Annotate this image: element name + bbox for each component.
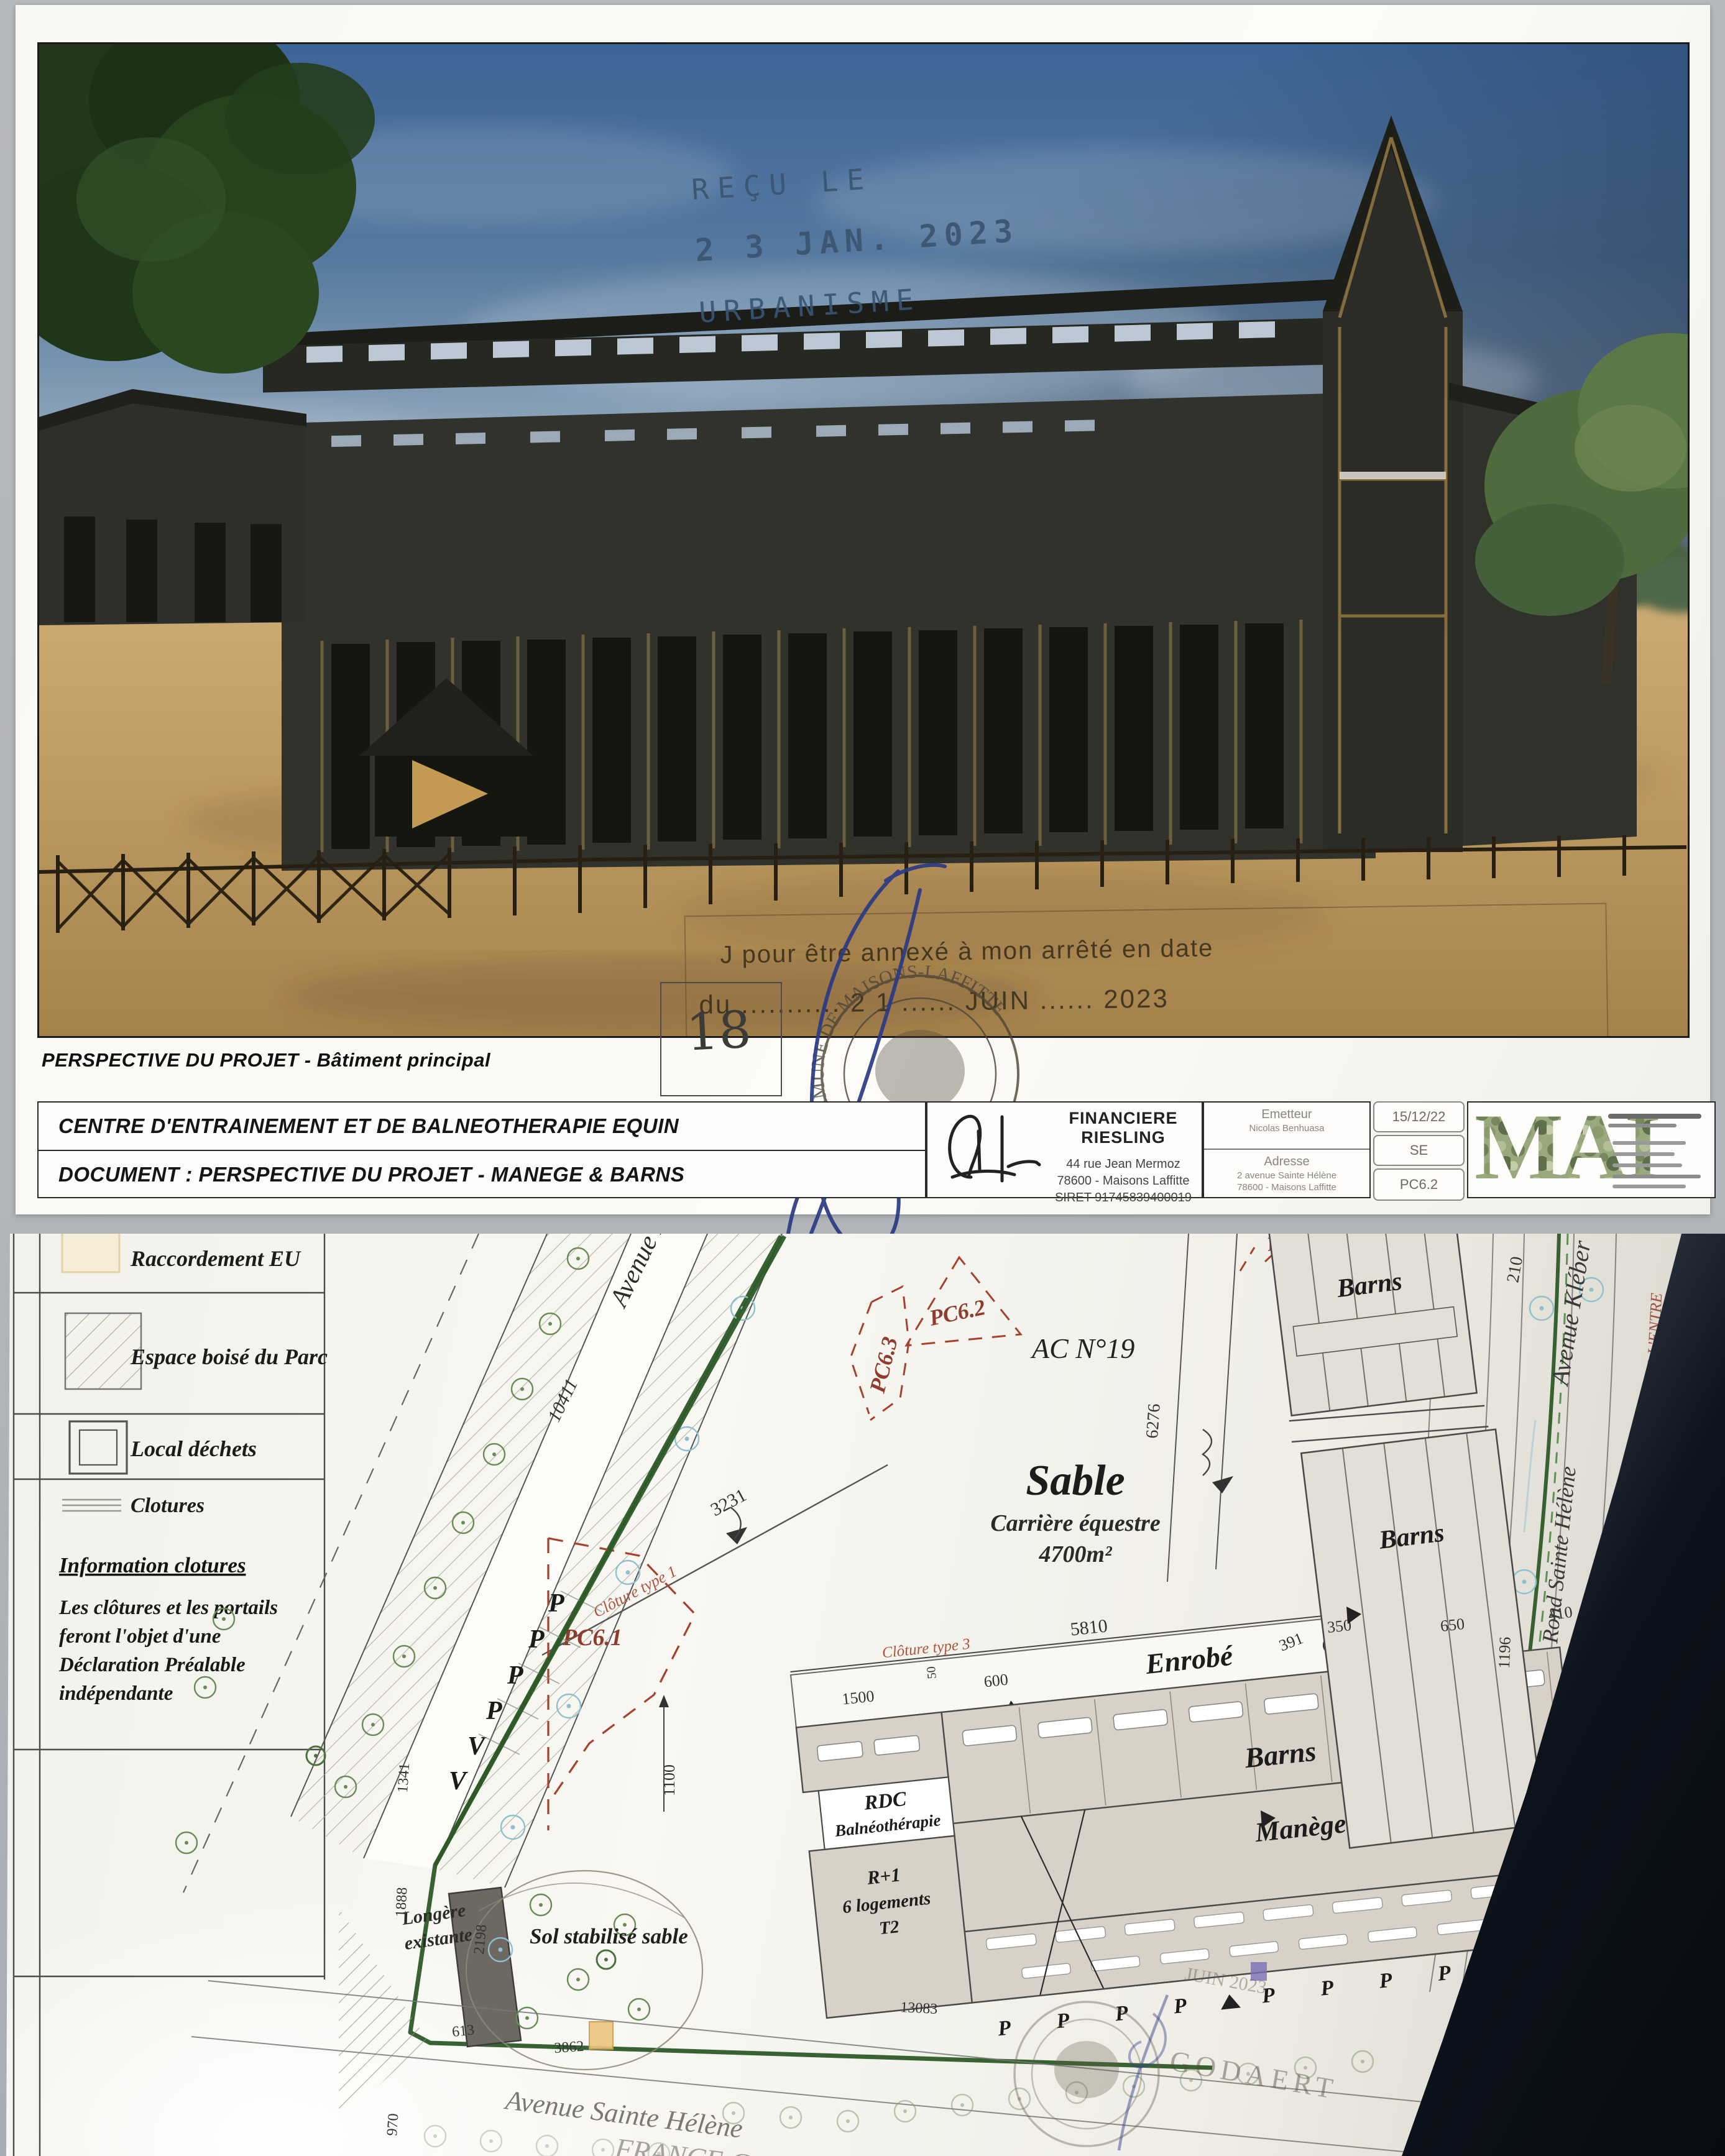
svg-text:P: P bbox=[996, 2016, 1012, 2040]
legend-symbol-boise bbox=[65, 1313, 141, 1389]
dim-5810: 5810 bbox=[1069, 1615, 1108, 1640]
area-label: 4700m² bbox=[1039, 1541, 1113, 1567]
pc61-label: PC6.1 bbox=[562, 1625, 622, 1651]
pc62-label: PC6.2 bbox=[926, 1295, 987, 1331]
dim-613: 613 bbox=[451, 2022, 476, 2040]
adresse-value1: 2 avenue Sainte Hélène bbox=[1204, 1170, 1369, 1181]
svg-text:Les clôtures et les portails: Les clôtures et les portails bbox=[58, 1597, 278, 1619]
rdc-label: RDC bbox=[862, 1788, 908, 1815]
svg-text:P: P bbox=[1055, 2009, 1071, 2033]
emitter-label: Emetteur bbox=[1204, 1108, 1369, 1122]
avenue-daumesnil-road: Avenue Dau 10411 bbox=[176, 1234, 782, 1892]
svg-text:P: P bbox=[548, 1589, 564, 1618]
legend-symbol-eu bbox=[62, 1234, 119, 1272]
dim-1500: 1500 bbox=[841, 1687, 875, 1708]
legend-info-text: Les clôtures et les portails feront l'ob… bbox=[58, 1597, 278, 1705]
issue-date: 15/12/22 bbox=[1373, 1101, 1465, 1132]
title-block: CENTRE D'ENTRAINEMENT ET DE BALNEOTHERAP… bbox=[37, 1101, 1716, 1201]
dim-3231: 3231 bbox=[707, 1485, 750, 1520]
left-barn bbox=[39, 389, 306, 625]
title-cell-contact: Emetteur Nicolas Benhuasa Adresse 2 aven… bbox=[1203, 1101, 1371, 1198]
received-stamp: REÇU LE 2 3 JAN. 2023 URBANISME bbox=[691, 152, 1047, 329]
svg-text:P: P bbox=[528, 1625, 545, 1654]
dim-1196: 1196 bbox=[1495, 1636, 1514, 1669]
legend: Raccordement EU Espace boisé du Parc Loc… bbox=[14, 1234, 328, 2156]
carriere-label: Carrière équestre bbox=[990, 1510, 1161, 1536]
legend-symbol-dechets bbox=[70, 1421, 127, 1474]
architect-logo: MAI bbox=[1474, 1105, 1714, 1197]
scanned-document: REÇU LE 2 3 JAN. 2023 URBANISME J pour ê… bbox=[0, 0, 1725, 2156]
drawing-caption: PERSPECTIVE DU PROJET - Bâtiment princip… bbox=[42, 1049, 490, 1071]
svg-text:Déclaration Préalable: Déclaration Préalable bbox=[58, 1654, 246, 1676]
dim-13083: 13083 bbox=[900, 1999, 938, 2017]
faint-godaert: GODAERT bbox=[1167, 2045, 1340, 2106]
page-perspective: REÇU LE 2 3 JAN. 2023 URBANISME J pour ê… bbox=[16, 5, 1710, 1214]
dim-6276: 6276 bbox=[1143, 1403, 1164, 1439]
svg-text:P: P bbox=[507, 1661, 523, 1690]
sable-label: Sable bbox=[1026, 1457, 1125, 1505]
title-cell-logo: MAI bbox=[1467, 1101, 1716, 1198]
svg-text:indépendante: indépendante bbox=[59, 1682, 173, 1705]
svg-text:feront l'objet d'une: feront l'objet d'une bbox=[59, 1625, 221, 1648]
company-address1: 44 rue Jean Mermoz bbox=[1046, 1157, 1201, 1172]
plate-number: 18 bbox=[685, 1000, 753, 1062]
project-title: CENTRE D'ENTRAINEMENT ET DE BALNEOTHERAP… bbox=[39, 1103, 925, 1151]
company-initials-signature bbox=[935, 1108, 1044, 1195]
legend-label-dechets: Local déchets bbox=[130, 1436, 257, 1461]
doc-ref: PC6.2 bbox=[1373, 1168, 1465, 1201]
svg-text:P: P bbox=[1319, 1976, 1335, 2001]
plate-number-box: 18 bbox=[660, 982, 782, 1096]
adresse-label: Adresse bbox=[1204, 1155, 1369, 1169]
sol-stabilise-label: Sol stabilisé sable bbox=[530, 1924, 688, 1948]
dim-600: 600 bbox=[983, 1671, 1009, 1691]
document-title: DOCUMENT : PERSPECTIVE DU PROJET - MANEG… bbox=[39, 1151, 925, 1198]
adresse-value2: 78600 - Maisons Laffitte bbox=[1204, 1182, 1369, 1193]
phase-code: SE bbox=[1373, 1135, 1465, 1166]
pc63-label: PC6.3 bbox=[865, 1334, 903, 1396]
received-stamp-date: 2 3 JAN. 2023 bbox=[694, 211, 1044, 268]
title-cell-meta: 15/12/22 SE PC6.2 bbox=[1371, 1101, 1467, 1198]
company-siret: SIRET 91745839400019 bbox=[1046, 1191, 1201, 1205]
dim-50a: 50 bbox=[924, 1666, 939, 1679]
parcel-ac19-label: AC N°19 bbox=[1030, 1333, 1134, 1364]
dim-650: 650 bbox=[1440, 1615, 1466, 1635]
title-cell-company: FINANCIERE RIESLING 44 rue Jean Mermoz 7… bbox=[926, 1101, 1203, 1198]
dim-410: 410 bbox=[1547, 1603, 1574, 1624]
svg-text:P: P bbox=[1436, 1961, 1452, 1986]
svg-text:P: P bbox=[1378, 1969, 1394, 1993]
svg-text:P: P bbox=[485, 1697, 502, 1725]
legend-symbol-clotures bbox=[62, 1500, 121, 1511]
dim-970: 970 bbox=[384, 2113, 402, 2137]
dim-1341: 1341 bbox=[395, 1763, 413, 1794]
company-name: FINANCIERE RIESLING bbox=[1046, 1109, 1201, 1147]
r1-label: R+1 bbox=[865, 1863, 901, 1889]
legend-label-eu: Raccordement EU bbox=[130, 1246, 301, 1271]
legend-label-clotures: Clotures bbox=[131, 1494, 205, 1517]
dim-2198: 2198 bbox=[471, 1924, 490, 1955]
gate-marker bbox=[589, 2022, 613, 2049]
legend-label-boise: Espace boisé du Parc bbox=[130, 1344, 328, 1369]
company-address2: 78600 - Maisons Laffitte bbox=[1046, 1174, 1201, 1188]
dim-1100: 1100 bbox=[660, 1764, 678, 1796]
dim-1888: 1888 bbox=[393, 1887, 410, 1917]
logo-text: MAI bbox=[1474, 1105, 1658, 1197]
svg-text:P: P bbox=[1172, 1994, 1188, 2018]
svg-text:V: V bbox=[449, 1767, 468, 1796]
t2-label: T2 bbox=[878, 1917, 900, 1938]
dim-3862: 3862 bbox=[554, 2039, 585, 2057]
title-cell-project: CENTRE D'ENTRAINEMENT ET DE BALNEOTHERAP… bbox=[37, 1101, 926, 1198]
emitter-value: Nicolas Benhuasa bbox=[1204, 1123, 1369, 1134]
legend-info-title: Information clotures bbox=[58, 1553, 246, 1577]
